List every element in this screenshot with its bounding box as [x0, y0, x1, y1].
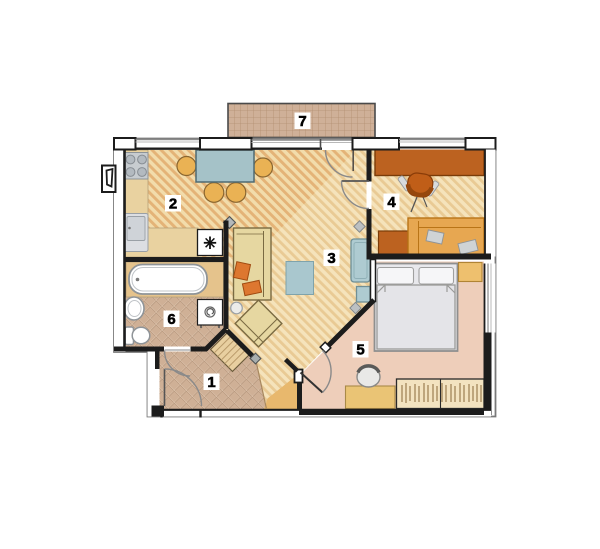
svg-text:6: 6 — [167, 311, 175, 328]
svg-text:3: 3 — [327, 250, 335, 267]
svg-text:5: 5 — [356, 342, 364, 359]
svg-text:2: 2 — [169, 196, 177, 213]
svg-text:7: 7 — [298, 113, 306, 130]
svg-text:1: 1 — [207, 374, 215, 391]
svg-text:4: 4 — [387, 194, 396, 211]
